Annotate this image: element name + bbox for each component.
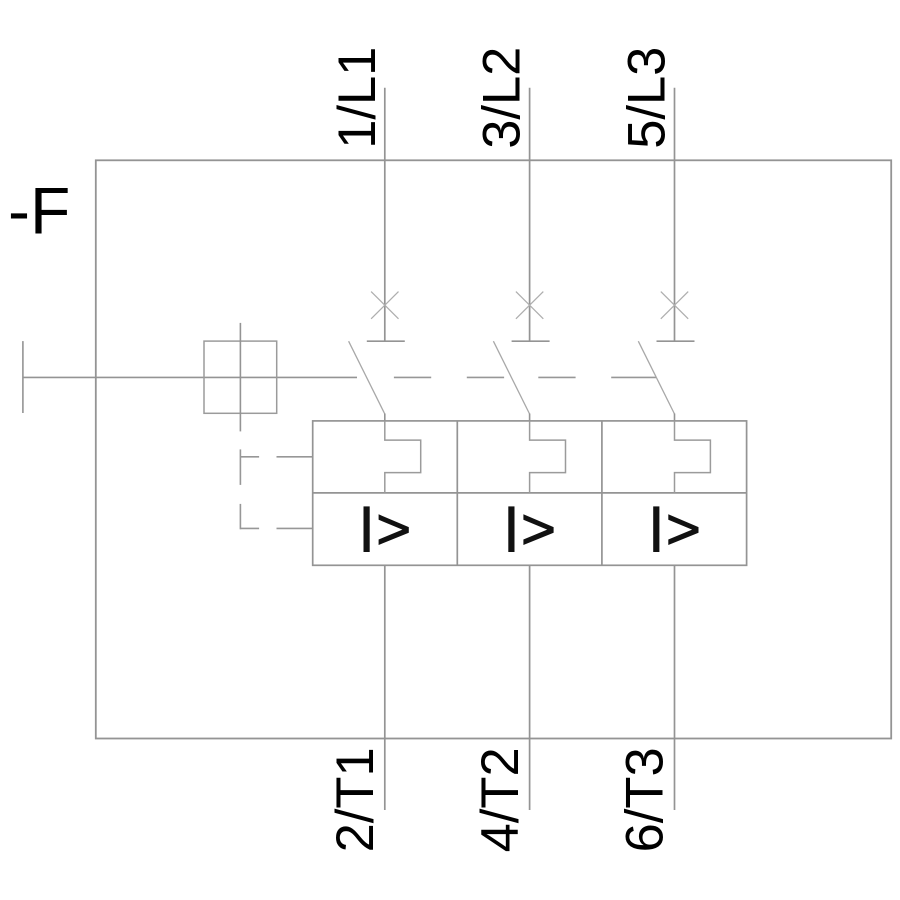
svg-text:6/T3: 6/T3 <box>616 747 675 852</box>
svg-text:4/T2: 4/T2 <box>471 747 530 852</box>
svg-text:2/T1: 2/T1 <box>326 747 385 852</box>
svg-text:-F: -F <box>8 173 70 247</box>
svg-text:3/L2: 3/L2 <box>473 47 532 149</box>
svg-text:1/L1: 1/L1 <box>328 47 387 149</box>
svg-text:5/L3: 5/L3 <box>617 47 676 149</box>
